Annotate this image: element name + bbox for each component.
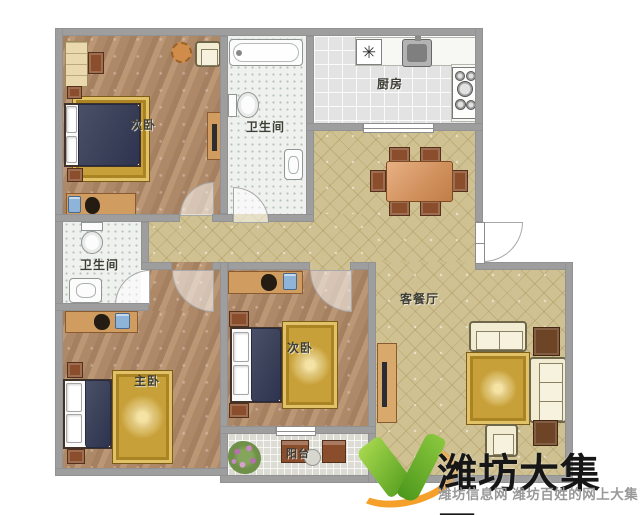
appliance-mark-icon: ✳: [356, 39, 382, 65]
nightstand-icon: [67, 168, 83, 182]
wall-bedroom-bath-divider: [220, 36, 228, 214]
chair-icon: [115, 313, 130, 329]
plant-icon: [228, 441, 261, 474]
pillow-icon: [66, 106, 77, 133]
wall-master-bedroom-divider: [220, 262, 228, 468]
dining-chair-icon: [452, 170, 468, 192]
entry-door-leaf: [475, 222, 485, 264]
loveseat-icon: [469, 321, 527, 352]
sofa-cushion: [539, 363, 563, 383]
armchair-cushion: [201, 49, 218, 66]
wall-bedroom-bottom-top-a: [228, 262, 310, 270]
wall-balcony-top-a: [220, 426, 276, 434]
basin-bowl: [76, 283, 96, 298]
balcony-chair-icon: [322, 440, 346, 463]
dining-chair-icon: [420, 200, 441, 216]
room-label-kitchen: 厨房: [377, 75, 403, 92]
room-label-balcony: 阳台: [286, 445, 310, 461]
balcony-slider-door: [276, 426, 316, 436]
pillow-icon: [66, 414, 82, 443]
rug-icon: [466, 352, 530, 425]
pillow-icon: [66, 383, 82, 412]
chair-icon: [94, 314, 110, 330]
wall-kitchen-bottom-a: [306, 123, 363, 131]
toilet-icon: [81, 231, 103, 254]
dining-table-icon: [386, 161, 453, 202]
nightstand-icon: [67, 449, 85, 464]
armchair-icon: [195, 41, 221, 67]
burner-icon: [455, 99, 466, 110]
faucet-icon: [236, 50, 242, 56]
wall-hall-top-a: [55, 214, 180, 222]
blanket-icon: [85, 380, 111, 448]
tv-icon: [212, 124, 217, 151]
wall-entry-return: [475, 262, 573, 270]
sofa-cushion: [539, 401, 563, 421]
toilet-tank: [228, 94, 237, 117]
burner-icon: [457, 81, 473, 97]
watermark-site-name: 潍坊大集网: [437, 441, 640, 515]
washbasin-icon: [69, 278, 102, 303]
toilet-icon: [237, 92, 259, 118]
room-label-bedroom-bottom: 次卧: [287, 339, 313, 356]
pillow-icon: [66, 136, 77, 163]
sofa-icon: [529, 357, 567, 423]
room-label-bathroom-mid: 卫生间: [80, 256, 119, 273]
pillow-icon: [233, 365, 249, 395]
burner-icon: [455, 71, 465, 81]
wall-bottom-left: [55, 468, 228, 476]
side-table-icon: [533, 327, 560, 356]
sink-basin: [407, 44, 427, 62]
wall-master-top-a: [141, 262, 172, 270]
wardrobe-icon: [65, 41, 88, 87]
stove-icon: [452, 67, 477, 119]
room-label-living: 客餐厅: [400, 290, 439, 307]
chair-icon: [261, 274, 277, 291]
basin-bowl: [288, 156, 299, 174]
tv-stand-icon: [377, 343, 397, 423]
wall-top: [55, 28, 483, 36]
wall-balcony-top-b: [314, 426, 376, 434]
sofa-cushion: [476, 331, 500, 350]
chair-icon: [68, 196, 81, 213]
room-label-bedroom-top: 次卧: [130, 116, 156, 133]
wall-left: [55, 28, 63, 476]
kitchen-sink-icon: [402, 39, 432, 67]
stool-icon: [88, 52, 104, 74]
kitchen-pass-window: [363, 123, 434, 133]
watermark-tagline: 潍坊信息网 潍坊百姓的网上大集: [438, 483, 638, 503]
entry-door-arc: [483, 222, 523, 262]
sofa-cushion: [539, 382, 563, 402]
room-label-master: 主卧: [134, 372, 160, 389]
round-table-icon: [171, 42, 192, 63]
nightstand-icon: [229, 403, 249, 418]
chair-icon: [283, 273, 297, 290]
chair-icon: [85, 197, 100, 214]
blanket-icon: [251, 328, 281, 402]
dining-chair-icon: [370, 170, 386, 192]
nightstand-icon: [67, 86, 82, 99]
room-label-bathroom-top: 卫生间: [246, 118, 285, 135]
pillow-icon: [233, 332, 249, 362]
tv-icon: [382, 362, 387, 407]
wall-hall-top-b: [212, 214, 233, 222]
wall-kitchen-bottom-b: [432, 123, 483, 131]
washbasin-icon: [284, 149, 303, 180]
wall-hall-top-c: [268, 214, 314, 222]
wall-bath-mid-bottom: [55, 303, 149, 311]
nightstand-icon: [67, 362, 83, 378]
dining-chair-icon: [389, 200, 410, 216]
blanket-icon: [78, 104, 140, 166]
rug-icon: [282, 321, 338, 409]
floor-plan: 次卧 卫生间 ✳ 厨房 客餐厅: [0, 0, 640, 515]
sofa-cushion: [499, 331, 523, 350]
bathtub-icon: [229, 39, 303, 66]
bathtub-basin: [233, 43, 299, 62]
nightstand-icon: [229, 311, 249, 327]
toilet-tank: [81, 222, 103, 231]
